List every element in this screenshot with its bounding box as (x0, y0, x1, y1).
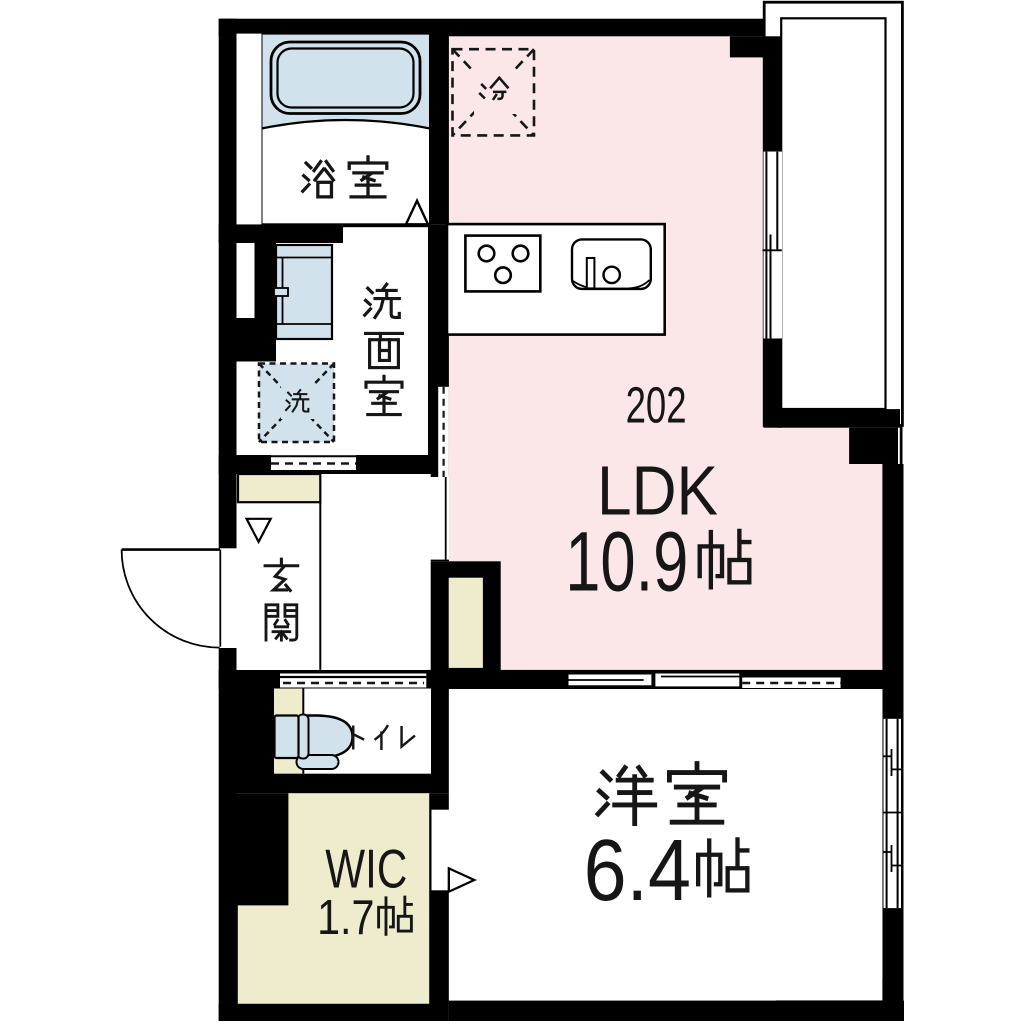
svg-text:6.4: 6.4 (584, 822, 691, 919)
svg-text:1.7: 1.7 (317, 891, 374, 945)
svg-text:202: 202 (626, 377, 687, 434)
svg-text:10.9: 10.9 (565, 515, 688, 609)
